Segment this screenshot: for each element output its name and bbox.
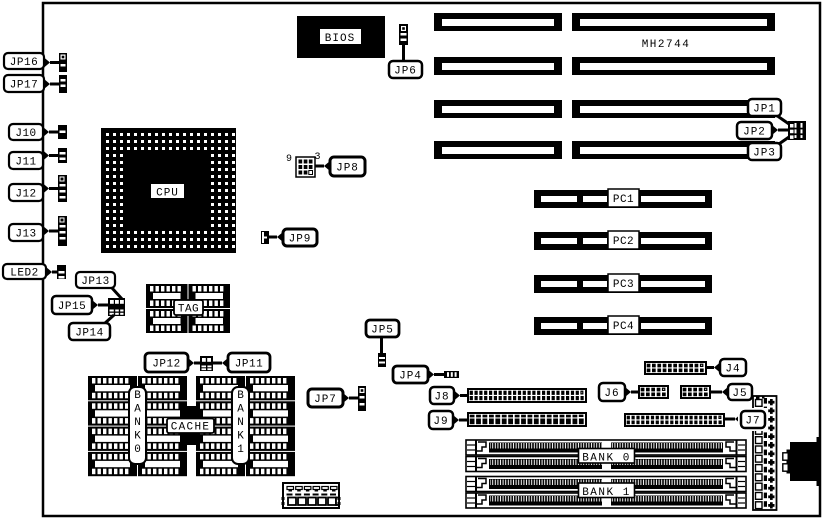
- svg-text:JP15: JP15: [58, 301, 86, 313]
- svg-text:BANK 0: BANK 0: [582, 453, 631, 465]
- svg-text:J9: J9: [433, 416, 448, 428]
- svg-text:J10: J10: [15, 128, 36, 140]
- svg-text:JP3: JP3: [753, 147, 776, 159]
- svg-text:JP7: JP7: [314, 394, 337, 406]
- svg-text:J8: J8: [434, 391, 449, 403]
- svg-text:PC2: PC2: [613, 236, 634, 248]
- svg-text:J7: J7: [745, 415, 760, 427]
- svg-text:JP6: JP6: [394, 65, 417, 77]
- svg-text:J6: J6: [604, 388, 619, 400]
- svg-text:JP16: JP16: [10, 57, 38, 69]
- svg-text:MH2744: MH2744: [642, 39, 691, 51]
- svg-text:JP4: JP4: [399, 370, 422, 382]
- svg-text:J12: J12: [15, 188, 36, 200]
- svg-text:JP8: JP8: [336, 162, 359, 174]
- svg-text:JP9: JP9: [289, 233, 312, 245]
- svg-text:JP14: JP14: [75, 327, 103, 339]
- svg-text:9: 9: [286, 154, 292, 165]
- svg-text:JP17: JP17: [10, 79, 38, 91]
- svg-text:BIOS: BIOS: [325, 33, 355, 45]
- svg-text:PC3: PC3: [613, 279, 634, 291]
- svg-text:JP12: JP12: [152, 358, 180, 370]
- svg-text:JP5: JP5: [371, 324, 394, 336]
- svg-text:BANK0: BANK0: [134, 390, 141, 456]
- svg-text:J5: J5: [732, 388, 747, 400]
- svg-text:PC4: PC4: [613, 321, 634, 333]
- svg-text:JP1: JP1: [753, 103, 776, 115]
- svg-text:PC1: PC1: [613, 194, 634, 206]
- svg-text:BANK 1: BANK 1: [582, 487, 631, 499]
- svg-text:BANK1: BANK1: [237, 390, 244, 456]
- svg-text:JP2: JP2: [743, 126, 766, 138]
- svg-text:J11: J11: [15, 156, 36, 168]
- svg-text:TAG: TAG: [178, 303, 199, 315]
- svg-text:LED2: LED2: [10, 267, 38, 279]
- svg-text:J13: J13: [15, 228, 36, 240]
- svg-text:CACHE: CACHE: [171, 422, 211, 434]
- svg-text:J4: J4: [725, 363, 740, 375]
- svg-text:CPU: CPU: [156, 188, 179, 200]
- svg-text:JP11: JP11: [235, 358, 263, 370]
- svg-text:JP13: JP13: [81, 276, 109, 288]
